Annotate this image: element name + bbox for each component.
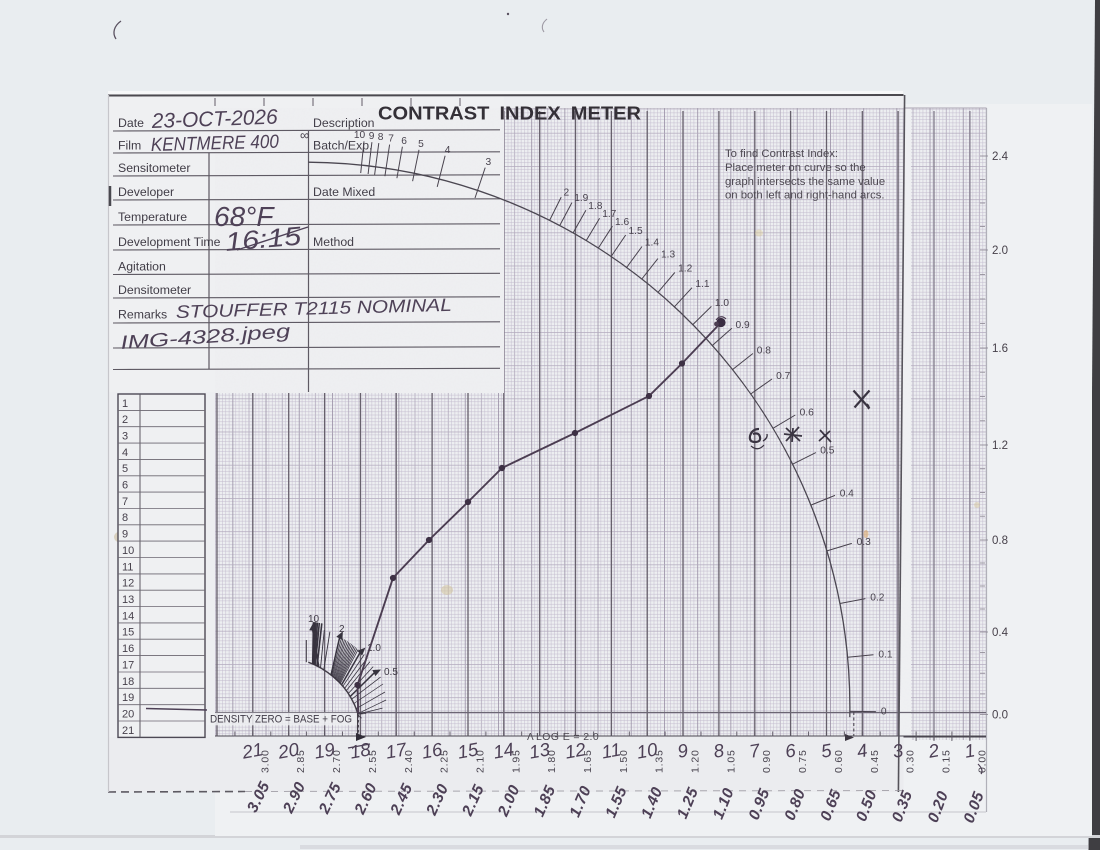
- svg-text:14: 14: [122, 610, 134, 622]
- svg-text:0.30: 0.30: [905, 749, 917, 773]
- svg-text:10: 10: [122, 545, 134, 557]
- svg-text:Remarks: Remarks: [118, 308, 167, 322]
- svg-text:Developer: Developer: [118, 185, 174, 199]
- svg-text:19: 19: [122, 692, 134, 704]
- svg-text:0.15: 0.15: [941, 749, 953, 773]
- svg-text:12: 12: [122, 578, 134, 590]
- svg-text:11: 11: [122, 561, 133, 573]
- svg-text:2.4: 2.4: [992, 151, 1009, 163]
- svg-text:1: 1: [122, 398, 128, 410]
- svg-text:5: 5: [122, 463, 128, 475]
- svg-text:2.25: 2.25: [439, 749, 451, 773]
- svg-text:2.85: 2.85: [295, 749, 307, 773]
- svg-text:Film: Film: [118, 139, 141, 153]
- svg-text:1.20: 1.20: [690, 749, 702, 773]
- svg-text:6: 6: [122, 480, 128, 492]
- svg-text:Development Time: Development Time: [118, 235, 221, 249]
- svg-text:1.50: 1.50: [618, 749, 630, 773]
- svg-text:Densitometer: Densitometer: [118, 283, 191, 297]
- svg-text:Temperature: Temperature: [118, 210, 187, 224]
- svg-text:Sensitometer: Sensitometer: [118, 161, 190, 175]
- svg-text:0.8: 0.8: [992, 535, 1008, 547]
- svg-text:17: 17: [122, 659, 134, 671]
- svg-text:0.90: 0.90: [761, 749, 773, 773]
- svg-text:8: 8: [122, 512, 128, 524]
- svg-text:7: 7: [122, 496, 128, 508]
- svg-text:3.00: 3.00: [259, 749, 271, 773]
- svg-text:4: 4: [122, 447, 128, 459]
- svg-text:13: 13: [122, 594, 134, 606]
- svg-text:21: 21: [122, 725, 134, 737]
- svg-text:9: 9: [122, 529, 128, 541]
- svg-text:0.0: 0.0: [992, 710, 1008, 722]
- svg-text:3: 3: [122, 431, 128, 443]
- svg-text:16: 16: [122, 643, 134, 655]
- svg-text:2.40: 2.40: [403, 749, 415, 773]
- svg-text:18: 18: [122, 676, 134, 688]
- svg-text:2.10: 2.10: [475, 749, 487, 773]
- svg-text:1.6: 1.6: [992, 343, 1008, 355]
- svg-text:0.4: 0.4: [992, 627, 1009, 639]
- svg-text:2.55: 2.55: [367, 749, 379, 773]
- svg-text:1.2: 1.2: [992, 440, 1008, 452]
- svg-text:2.70: 2.70: [331, 749, 343, 773]
- svg-text:0.00: 0.00: [976, 749, 988, 773]
- svg-text:Agitation: Agitation: [118, 260, 166, 274]
- svg-text:2: 2: [122, 414, 128, 426]
- svg-text:20: 20: [122, 709, 134, 721]
- svg-text:1.35: 1.35: [654, 749, 666, 773]
- svg-text:1.65: 1.65: [582, 749, 594, 773]
- svg-text:0.45: 0.45: [869, 749, 881, 773]
- svg-text:15: 15: [122, 627, 134, 639]
- svg-text:1.95: 1.95: [510, 749, 522, 773]
- svg-text:0.60: 0.60: [833, 749, 845, 773]
- svg-text:Date: Date: [118, 116, 144, 130]
- svg-text:0.75: 0.75: [797, 749, 809, 773]
- svg-text:2.0: 2.0: [992, 245, 1008, 257]
- svg-text:1.05: 1.05: [725, 749, 737, 773]
- svg-text:1.80: 1.80: [546, 749, 558, 773]
